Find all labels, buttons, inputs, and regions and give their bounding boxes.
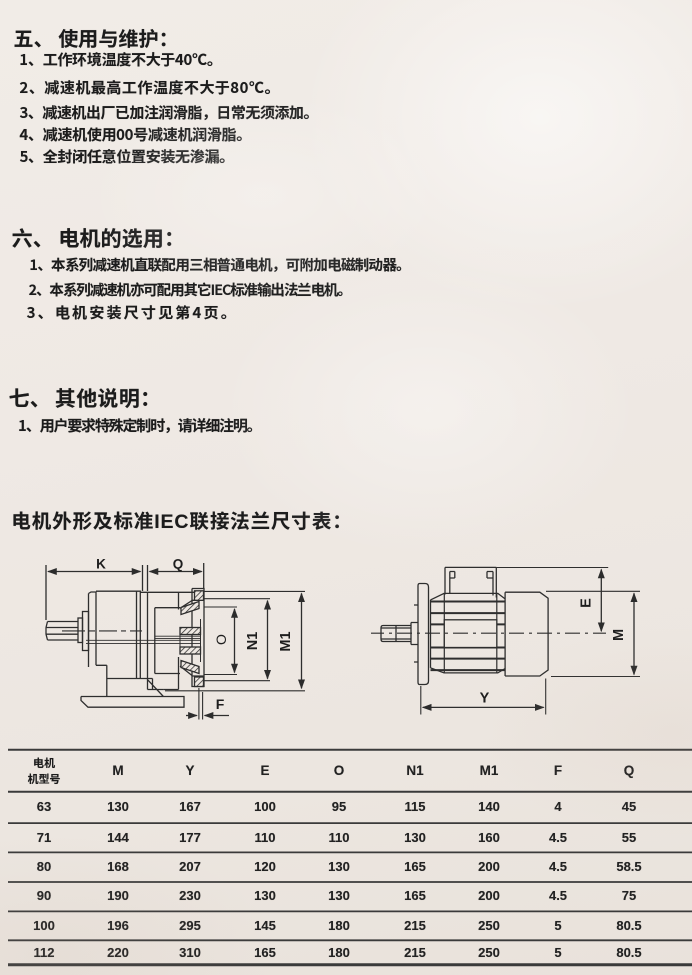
- svg-text:F: F: [216, 696, 225, 712]
- svg-text:M: M: [611, 629, 627, 641]
- svg-text:K: K: [96, 557, 106, 572]
- svg-text:E: E: [579, 598, 595, 608]
- svg-text:O: O: [213, 634, 229, 645]
- svg-text:M1: M1: [278, 631, 294, 651]
- svg-text:Y: Y: [480, 691, 490, 707]
- svg-text:N1: N1: [245, 632, 261, 651]
- svg-text:Q: Q: [173, 557, 184, 572]
